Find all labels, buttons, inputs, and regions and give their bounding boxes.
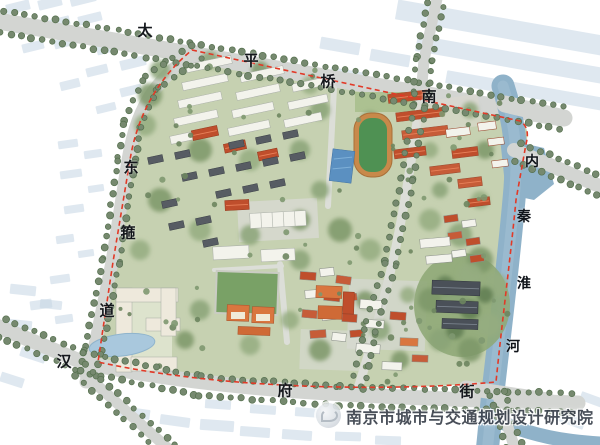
institute-logo-icon <box>316 403 341 428</box>
master-plan-screenshot: 太 平 桥 南 东 箍 道 汉 府 街 内 秦 淮 河 南京市城市与交通规划设计… <box>0 0 600 445</box>
watermark-text: 南京市城市与交通规划设计研究院 <box>346 404 594 428</box>
watermark: 南京市城市与交通规划设计研究院 <box>316 403 594 428</box>
plan-rendering-svg <box>0 0 600 445</box>
